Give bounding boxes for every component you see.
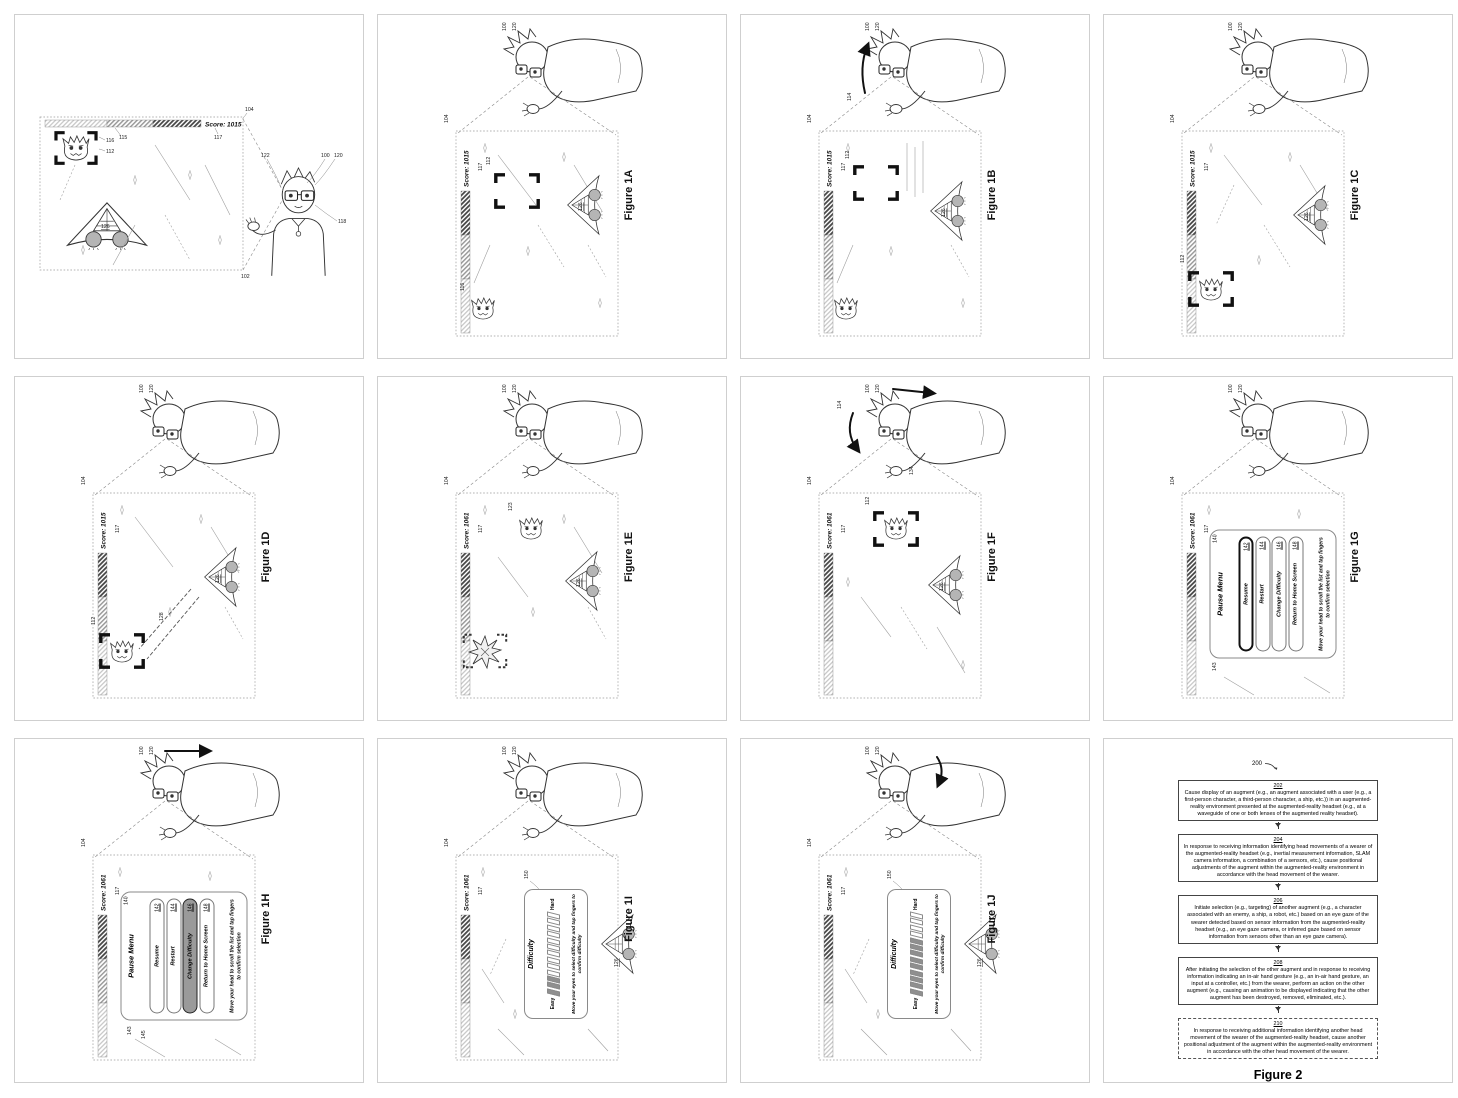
player-ship bbox=[1294, 186, 1329, 244]
pause-menu: 140 Pause Menu Resume142 Restart144 Chan… bbox=[120, 891, 247, 1020]
ar-game-view: Score: 1015 bbox=[40, 117, 243, 270]
pause-menu-item-change-difficulty: Change Difficulty146 bbox=[1271, 536, 1286, 651]
score-text: Score: 1061 bbox=[827, 512, 834, 549]
ref-142: 142 bbox=[154, 903, 160, 911]
ref-120: 120 bbox=[875, 746, 881, 755]
player-ship bbox=[568, 176, 603, 234]
flowchart-ref-200: 200 bbox=[1252, 761, 1280, 771]
ref-100: 100 bbox=[865, 384, 871, 393]
ref-120: 120 bbox=[875, 384, 881, 393]
difficulty-slider: Easy Hard bbox=[547, 894, 560, 1014]
step-text: After initiating the selection of the ot… bbox=[1186, 967, 1371, 1001]
step-text: Initiate selection (e.g., targeting) of … bbox=[1187, 905, 1369, 939]
ref-104: 104 bbox=[444, 114, 450, 123]
ref-114: 114 bbox=[847, 93, 853, 101]
wearer-figure bbox=[862, 29, 1005, 116]
ref-120: 120 bbox=[149, 746, 155, 755]
ref-126: 126 bbox=[941, 208, 947, 217]
ref-126: 126 bbox=[215, 574, 221, 583]
player-ship bbox=[931, 182, 966, 240]
pause-menu-item-restart: Restart144 bbox=[166, 898, 181, 1013]
ref-126: 126 bbox=[614, 958, 620, 967]
wearer-figure bbox=[504, 753, 642, 840]
ref-112: 112 bbox=[845, 151, 851, 159]
ref-104: 104 bbox=[1170, 476, 1176, 485]
step-ref: 202 bbox=[1183, 783, 1373, 790]
player-ship bbox=[566, 552, 601, 610]
hard-label: Hard bbox=[913, 899, 919, 910]
flowchart-step-206: 206 Initiate selection (e.g., targeting)… bbox=[1178, 895, 1378, 943]
score-text: Score: 1015 bbox=[101, 512, 108, 549]
explosion-burst bbox=[469, 636, 501, 668]
figure-2-flowchart: 200 202 Cause display of an augment (e.g… bbox=[1104, 739, 1452, 1082]
ref-143: 143 bbox=[1212, 662, 1218, 671]
ref-118: 118 bbox=[338, 219, 346, 225]
ref-120: 120 bbox=[149, 384, 155, 393]
ref-102: 102 bbox=[241, 274, 250, 280]
ref-145: 145 bbox=[141, 1030, 147, 1039]
ref-112: 112 bbox=[486, 157, 492, 165]
panel-figure-1e: Score: 1061 104 117 100 120 123 126 Figu… bbox=[377, 376, 727, 721]
wearer-figure bbox=[504, 29, 642, 116]
pause-menu-item-resume: Resume142 bbox=[149, 898, 164, 1013]
item-label: Restart bbox=[1259, 584, 1265, 603]
panel-figure-1f: Score: 1061 104 117 100 120 114 134 112 … bbox=[740, 376, 1090, 721]
figure-caption: Figure 1A bbox=[623, 170, 635, 221]
ref-117: 117 bbox=[478, 525, 484, 533]
pause-menu-hint: Move your head to scroll the list and ta… bbox=[229, 898, 242, 1013]
patent-figures-sheet: Score: 1015 116 112 115 117 104 102 126 … bbox=[0, 0, 1458, 1098]
ref-150: 150 bbox=[887, 870, 893, 879]
ref-112: 112 bbox=[1180, 255, 1186, 263]
ar-game-view: Score: 1061 bbox=[456, 493, 618, 698]
ar-game-view: Score: 1015 bbox=[93, 493, 255, 698]
firing-lines bbox=[139, 589, 199, 659]
figure-caption: Figure 1J bbox=[986, 895, 998, 944]
enemy-creature bbox=[63, 136, 89, 160]
score-bar-mid bbox=[107, 120, 153, 127]
score-text: Score: 1061 bbox=[101, 874, 108, 911]
item-label: Return to Home Screen bbox=[203, 924, 209, 986]
panel-figure-1b: Score: 1015 104 117 100 120 114 112 126 … bbox=[740, 14, 1090, 359]
ref-126: 126 bbox=[101, 224, 110, 230]
enemy-creature bbox=[472, 298, 495, 319]
ref-100: 100 bbox=[502, 746, 508, 755]
ref-120: 120 bbox=[512, 384, 518, 393]
figure-1-drawing: Score: 1015 116 112 115 117 104 102 126 … bbox=[15, 15, 363, 358]
pause-menu: 140 Pause Menu Resume142 Restart144 Chan… bbox=[1209, 529, 1336, 658]
ref-104: 104 bbox=[1170, 114, 1176, 123]
figure-caption: Figure 1I bbox=[623, 896, 635, 942]
panel-figure-1-overview: Score: 1015 116 112 115 117 104 102 126 … bbox=[14, 14, 364, 359]
ref-117: 117 bbox=[841, 525, 847, 533]
pause-menu-card: 140 Pause Menu Resume142 Restart144 Chan… bbox=[1209, 529, 1336, 658]
ref-126: 126 bbox=[576, 578, 582, 587]
ref-100: 100 bbox=[139, 384, 145, 393]
ref-150: 150 bbox=[524, 870, 530, 879]
ref-144: 144 bbox=[1259, 541, 1265, 549]
wearer-figure bbox=[867, 753, 1005, 840]
ref-100: 100 bbox=[1228, 384, 1234, 393]
ref-126: 126 bbox=[977, 958, 983, 967]
figure-caption: Figure 1H bbox=[260, 894, 272, 945]
head-movement-arrow bbox=[862, 47, 867, 93]
pause-menu-item-return-home: Return to Home Screen148 bbox=[199, 898, 214, 1013]
panel-figure-1d: Score: 1015 104 117 100 120 128 112 126 … bbox=[14, 376, 364, 721]
difficulty-panel: Difficulty Easy Hard Move your eyes to s… bbox=[887, 889, 951, 1019]
item-label: Restart bbox=[170, 946, 176, 965]
ref-120: 120 bbox=[512, 22, 518, 31]
ref-117: 117 bbox=[478, 887, 484, 895]
difficulty-card: Difficulty Easy Hard Move your eyes to s… bbox=[524, 889, 588, 1019]
ref-104: 104 bbox=[807, 114, 813, 123]
panel-figure-1h: Score: 1061 104 117 100 120 143 145 Figu… bbox=[14, 738, 364, 1083]
flowchart-step-210: 210 In response to receiving additional … bbox=[1178, 1018, 1378, 1059]
ar-game-view: Score: 1015 bbox=[1182, 131, 1344, 336]
item-label: Return to Home Screen bbox=[1292, 562, 1298, 624]
figure-1c-drawing: Score: 1015 104 117 100 120 112 126 Figu… bbox=[1104, 15, 1452, 358]
difficulty-title: Difficulty bbox=[528, 894, 535, 1014]
player-ship bbox=[929, 556, 964, 614]
easy-label: Easy bbox=[913, 998, 919, 1010]
ref-116: 116 bbox=[106, 138, 114, 144]
new-enemy-creature bbox=[520, 518, 543, 539]
flowchart-step-208: 208 After initiating the selection of th… bbox=[1178, 957, 1378, 1005]
difficulty-panel: Difficulty Easy Hard Move your eyes to s… bbox=[524, 889, 588, 1019]
ref-126: 126 bbox=[939, 582, 945, 591]
figure-caption: Figure 1D bbox=[260, 532, 272, 583]
ref-140: 140 bbox=[1212, 534, 1218, 542]
ref-143: 143 bbox=[127, 1026, 133, 1035]
figure-caption: Figure 1G bbox=[1349, 531, 1361, 582]
ar-game-view: Score: 1015 bbox=[819, 131, 981, 336]
panel-figure-1j: Score: 1061 104 117 100 120 150 154 126 … bbox=[740, 738, 1090, 1083]
ref-104: 104 bbox=[245, 107, 254, 113]
figure-1a-drawing: Score: 1015 104 117 100 120 112 126 116 … bbox=[378, 15, 726, 358]
wearer-figure bbox=[504, 391, 642, 478]
item-label: Resume bbox=[154, 945, 160, 967]
ref-104: 104 bbox=[81, 476, 87, 485]
wearer-figure bbox=[1230, 29, 1368, 116]
pause-menu-item-resume: Resume142 bbox=[1238, 536, 1253, 651]
ref-117: 117 bbox=[478, 163, 484, 171]
pause-menu-items: Resume142 Restart144 Change Difficulty14… bbox=[148, 898, 216, 1013]
ref-122: 122 bbox=[261, 153, 270, 159]
figure-1f-drawing: Score: 1061 104 117 100 120 114 134 112 … bbox=[741, 377, 1089, 720]
score-bar-high bbox=[153, 120, 201, 127]
score-text: Score: 1015 bbox=[1190, 150, 1197, 187]
ref-112: 112 bbox=[91, 617, 97, 625]
figure-1e-drawing: Score: 1061 104 117 100 120 123 126 Figu… bbox=[378, 377, 726, 720]
score-text: Score: 1015 bbox=[205, 122, 242, 129]
flow-arrow-icon bbox=[1278, 883, 1279, 890]
ref-128: 128 bbox=[159, 612, 165, 621]
ref-100: 100 bbox=[1228, 22, 1234, 31]
panel-figure-1c: Score: 1015 104 117 100 120 112 126 Figu… bbox=[1103, 14, 1453, 359]
ref-117: 117 bbox=[214, 135, 222, 141]
ref-117: 117 bbox=[1204, 163, 1210, 171]
ref-120: 120 bbox=[1238, 22, 1244, 31]
panel-figure-2: 200 202 Cause display of an augment (e.g… bbox=[1103, 738, 1453, 1083]
ref-134: 134 bbox=[909, 466, 915, 475]
ref-115: 115 bbox=[119, 135, 127, 141]
ref-146: 146 bbox=[187, 903, 193, 911]
difficulty-slider: Easy Hard bbox=[910, 894, 923, 1014]
pause-menu-title: Pause Menu bbox=[1215, 536, 1224, 651]
figure-caption: Figure 1C bbox=[1349, 170, 1361, 221]
pause-menu-card: 140 Pause Menu Resume142 Restart144 Chan… bbox=[120, 891, 247, 1020]
ref-116: 116 bbox=[460, 283, 466, 291]
step-ref: 208 bbox=[1183, 960, 1373, 967]
panel-figure-1g: Score: 1061 104 117 100 120 143 Figure 1… bbox=[1103, 376, 1453, 721]
target-bracket bbox=[855, 167, 897, 199]
figure-1d-drawing: Score: 1015 104 117 100 120 128 112 126 … bbox=[15, 377, 363, 720]
ref-104: 104 bbox=[444, 838, 450, 847]
head-movement-arrow-down bbox=[850, 413, 857, 449]
step-ref: 204 bbox=[1183, 837, 1373, 844]
score-text: Score: 1061 bbox=[1190, 512, 1197, 549]
ref-100: 100 bbox=[321, 153, 330, 159]
ref-104: 104 bbox=[807, 838, 813, 847]
ref-114: 114 bbox=[837, 401, 843, 409]
ref-112: 112 bbox=[865, 497, 871, 505]
ref-112: 112 bbox=[106, 149, 114, 155]
step-text: In response to receiving information ide… bbox=[1184, 844, 1372, 878]
pause-menu-items: Resume142 Restart144 Change Difficulty14… bbox=[1237, 536, 1305, 651]
ref-140: 140 bbox=[123, 896, 129, 904]
panel-figure-1a: Score: 1015 104 117 100 120 112 126 116 … bbox=[377, 14, 727, 359]
ref-104: 104 bbox=[444, 476, 450, 485]
ar-game-view: Score: 1061 bbox=[819, 493, 981, 698]
ref-120: 120 bbox=[1238, 384, 1244, 393]
ar-game-view: Score: 1015 bbox=[456, 131, 618, 336]
ref-104: 104 bbox=[81, 838, 87, 847]
flow-arrow-icon bbox=[1278, 945, 1279, 952]
ref-120: 120 bbox=[334, 153, 343, 159]
figure-1b-drawing: Score: 1015 104 117 100 120 114 112 126 … bbox=[741, 15, 1089, 358]
figure-grid: Score: 1015 116 112 115 117 104 102 126 … bbox=[0, 0, 1458, 1098]
step-text: In response to receiving additional info… bbox=[1184, 1028, 1372, 1055]
flow-arrow-icon bbox=[1278, 1006, 1279, 1013]
ref-126: 126 bbox=[578, 202, 584, 211]
step-text: Cause display of an augment (e.g., an au… bbox=[1185, 790, 1372, 817]
ref-123: 123 bbox=[508, 502, 514, 511]
difficulty-hint: Move your eyes to select difficulty and … bbox=[572, 894, 584, 1014]
ref-146: 146 bbox=[1276, 541, 1282, 549]
flow-arrow-icon bbox=[1278, 822, 1279, 829]
flowchart-step-204: 204 In response to receiving information… bbox=[1178, 834, 1378, 882]
enemy-creature bbox=[111, 641, 134, 662]
pause-menu-title: Pause Menu bbox=[126, 898, 135, 1013]
ref-117: 117 bbox=[115, 525, 121, 533]
difficulty-card: Difficulty Easy Hard Move your eyes to s… bbox=[887, 889, 951, 1019]
easy-label: Easy bbox=[550, 998, 556, 1010]
flowchart-step-202: 202 Cause display of an augment (e.g., a… bbox=[1178, 780, 1378, 821]
pause-menu-item-change-difficulty: Change Difficulty146 bbox=[182, 898, 197, 1013]
ref-120: 120 bbox=[512, 746, 518, 755]
ref-144: 144 bbox=[170, 903, 176, 911]
wearer-figure bbox=[141, 751, 279, 840]
ref-100: 100 bbox=[139, 746, 145, 755]
ref-200-leader-arrow-icon bbox=[1264, 761, 1280, 771]
item-label: Change Difficulty bbox=[187, 933, 193, 979]
item-label: Resume bbox=[1243, 583, 1249, 605]
score-text: Score: 1061 bbox=[464, 874, 471, 911]
hard-label: Hard bbox=[550, 899, 556, 910]
pause-menu-hint: Move your head to scroll the list and ta… bbox=[1318, 536, 1331, 651]
ref-100: 100 bbox=[865, 22, 871, 31]
ref-100: 100 bbox=[502, 384, 508, 393]
score-text: Score: 1015 bbox=[827, 150, 834, 187]
ref-104: 104 bbox=[807, 476, 813, 485]
score-text: Score: 1015 bbox=[464, 150, 471, 187]
ref-200: 200 bbox=[1252, 761, 1262, 767]
score-text: Score: 1061 bbox=[827, 874, 834, 911]
enemy-creature bbox=[885, 518, 908, 539]
enemy-creature bbox=[835, 298, 858, 319]
wearer-figure bbox=[141, 391, 279, 478]
step-ref: 210 bbox=[1183, 1021, 1373, 1028]
panel-figure-1i: Score: 1061 104 117 100 120 150 154 126 … bbox=[377, 738, 727, 1083]
player-ship bbox=[205, 548, 240, 606]
wearer-figure bbox=[850, 389, 1005, 478]
figure-2-caption: Figure 2 bbox=[1254, 1068, 1303, 1082]
ref-148: 148 bbox=[203, 903, 209, 911]
pause-menu-item-return-home: Return to Home Screen148 bbox=[1288, 536, 1303, 651]
score-bar-low bbox=[45, 120, 107, 127]
ref-100: 100 bbox=[502, 22, 508, 31]
score-text: Score: 1061 bbox=[464, 512, 471, 549]
wearer-figure bbox=[1230, 391, 1368, 478]
head-movement-arrow-right bbox=[893, 389, 931, 393]
ref-117: 117 bbox=[841, 163, 847, 171]
ref-126: 126 bbox=[1304, 212, 1310, 221]
difficulty-segments bbox=[910, 913, 923, 995]
enemy-creature bbox=[1200, 279, 1223, 300]
step-ref: 206 bbox=[1183, 898, 1373, 905]
difficulty-title: Difficulty bbox=[891, 894, 898, 1014]
ref-148: 148 bbox=[1292, 541, 1298, 549]
ref-117: 117 bbox=[841, 887, 847, 895]
pause-menu-item-restart: Restart144 bbox=[1255, 536, 1270, 651]
item-label: Change Difficulty bbox=[1276, 571, 1282, 617]
figure-caption: Figure 1E bbox=[623, 532, 635, 582]
wearer-figure bbox=[246, 168, 325, 276]
ref-120: 120 bbox=[875, 22, 881, 31]
figure-caption: Figure 1B bbox=[986, 170, 998, 221]
difficulty-hint: Move your eyes to select difficulty and … bbox=[935, 894, 947, 1014]
figure-caption: Figure 1F bbox=[986, 532, 998, 582]
ref-100: 100 bbox=[865, 746, 871, 755]
difficulty-segments bbox=[547, 913, 560, 995]
ref-142: 142 bbox=[1243, 542, 1249, 550]
